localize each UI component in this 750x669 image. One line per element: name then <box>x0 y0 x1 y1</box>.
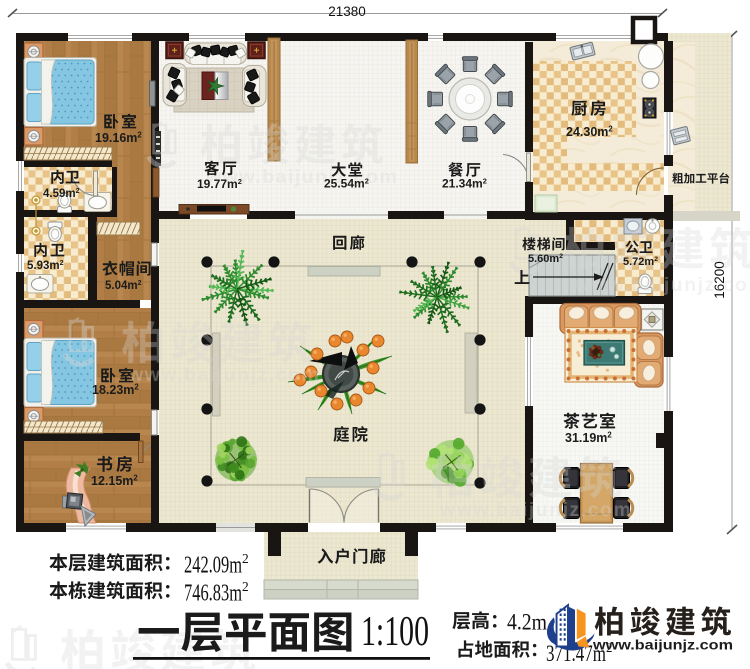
svg-text:4.59m2: 4.59m2 <box>43 187 80 200</box>
svg-text:www.baijunjz.com: www.baijunjz.com <box>127 364 320 386</box>
svg-text:19.16m2: 19.16m2 <box>95 131 142 145</box>
svg-text:2: 2 <box>242 551 249 566</box>
svg-text:31.19m2: 31.19m2 <box>565 431 612 445</box>
svg-text:746.83m: 746.83m <box>184 581 242 607</box>
svg-text:5.04m2: 5.04m2 <box>105 279 142 292</box>
svg-text:12.15m2: 12.15m2 <box>91 474 138 488</box>
svg-text:24.30m2: 24.30m2 <box>566 125 613 139</box>
svg-text:242.09m: 242.09m <box>184 553 242 579</box>
svg-text:21380: 21380 <box>328 4 366 19</box>
svg-text:5.60m2: 5.60m2 <box>528 253 563 265</box>
svg-text:5.93m2: 5.93m2 <box>27 259 64 272</box>
svg-text:www.baijunjz.com: www.baijunjz.com <box>574 274 750 296</box>
svg-text:4.2m: 4.2m <box>507 610 547 635</box>
svg-text:1:100: 1:100 <box>361 609 429 655</box>
svg-text:21.34m2: 21.34m2 <box>442 176 487 190</box>
svg-text:25.54m2: 25.54m2 <box>324 176 369 190</box>
svg-text:www.baijunjz.com: www.baijunjz.com <box>592 637 733 653</box>
svg-text:5.72m2: 5.72m2 <box>623 256 658 268</box>
svg-text:18.23m2: 18.23m2 <box>92 383 139 397</box>
svg-text:www.baijunjz.com: www.baijunjz.com <box>439 499 632 521</box>
svg-text:2: 2 <box>242 579 249 594</box>
svg-text:19.77m2: 19.77m2 <box>197 177 242 191</box>
